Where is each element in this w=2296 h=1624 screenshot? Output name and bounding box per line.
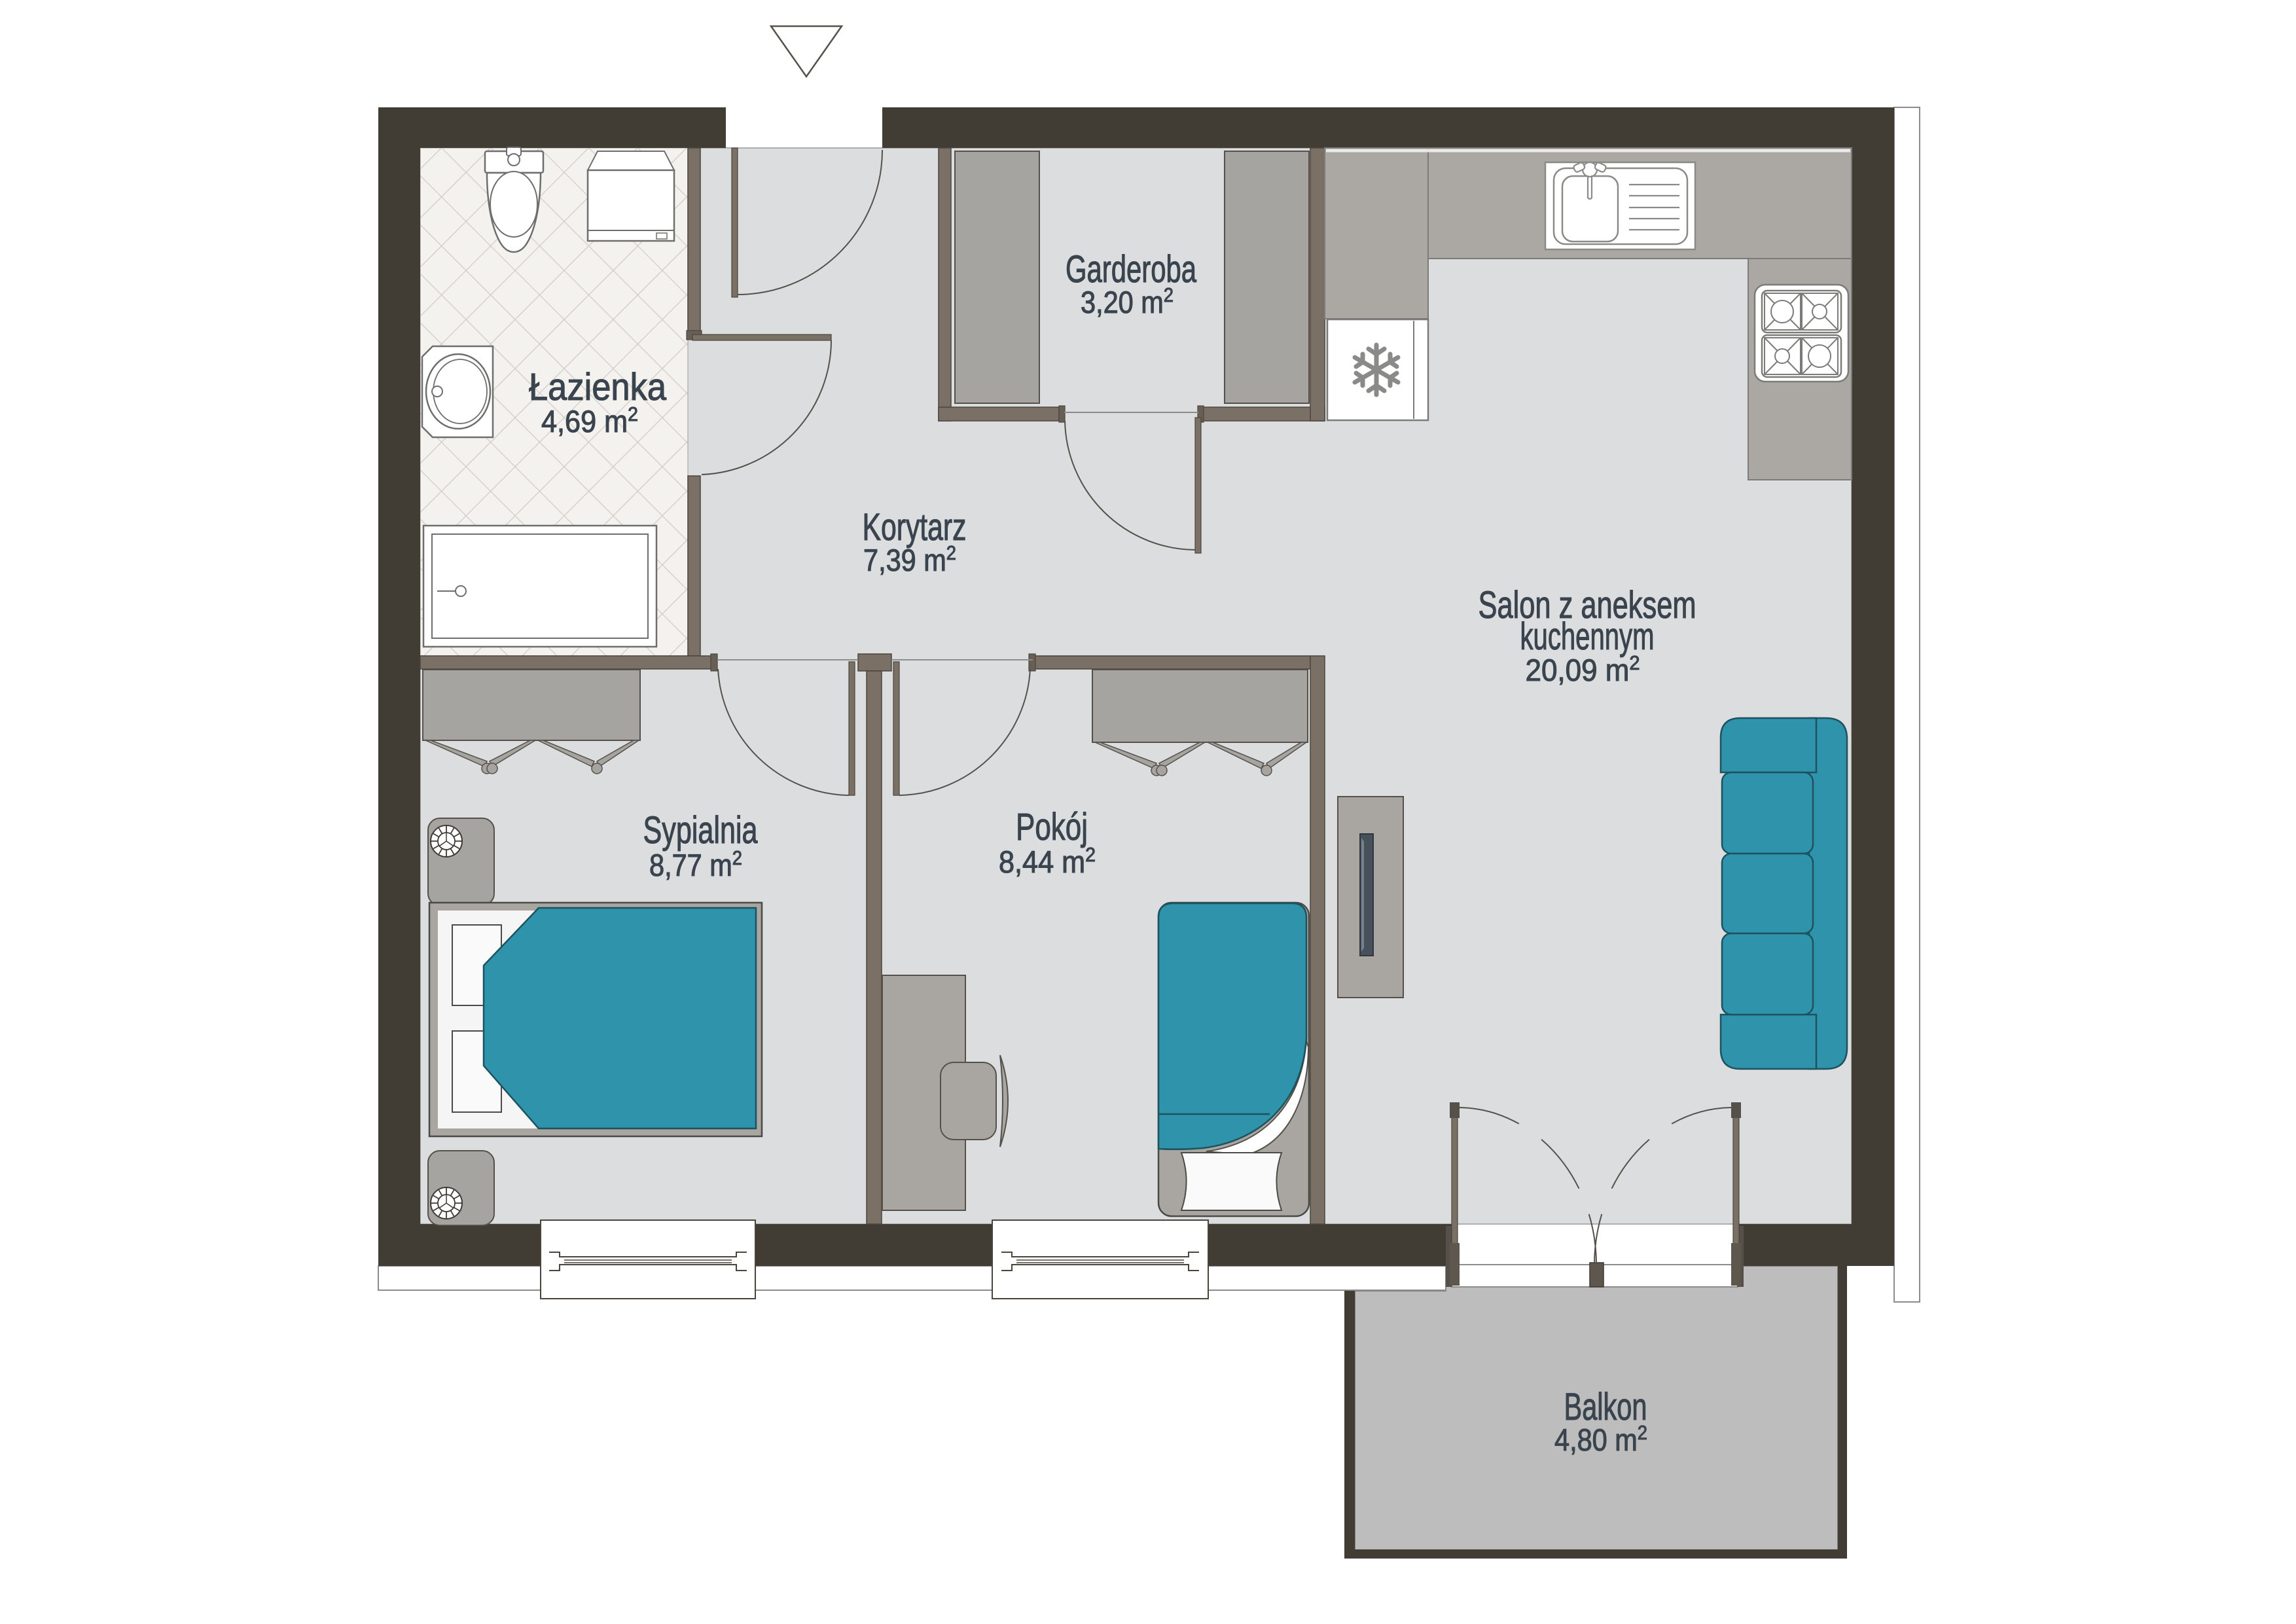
svg-text:3,20 m2: 3,20 m2 bbox=[1081, 283, 1174, 319]
svg-text:4,69 m2: 4,69 m2 bbox=[541, 403, 638, 439]
svg-text:Łazienka: Łazienka bbox=[529, 366, 667, 408]
svg-text:20,09 m2: 20,09 m2 bbox=[1526, 651, 1640, 687]
svg-text:4,80 m2: 4,80 m2 bbox=[1554, 1421, 1647, 1457]
svg-text:Sypialnia: Sypialnia bbox=[643, 809, 759, 852]
svg-text:8,44 m2: 8,44 m2 bbox=[999, 843, 1096, 879]
svg-text:Pokój: Pokój bbox=[1016, 806, 1088, 848]
svg-text:7,39 m2: 7,39 m2 bbox=[863, 541, 956, 577]
svg-text:8,77 m2: 8,77 m2 bbox=[649, 846, 742, 882]
